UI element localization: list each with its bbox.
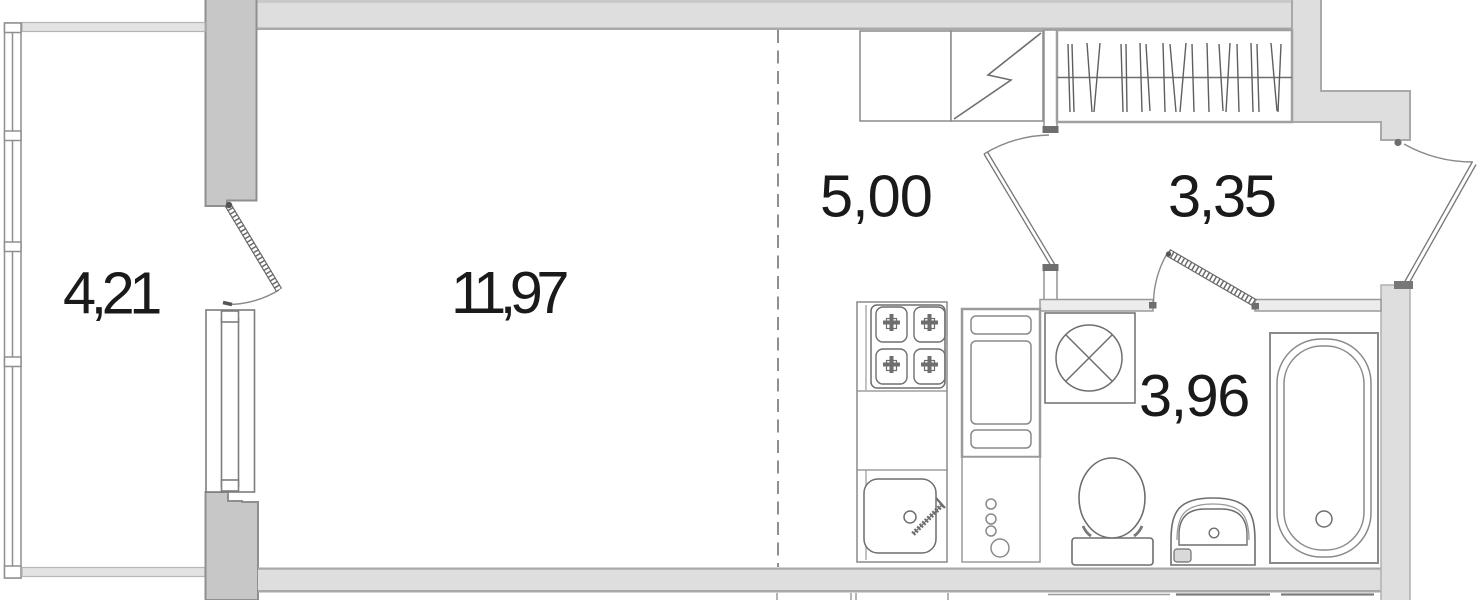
svg-text:5,00: 5,00 xyxy=(820,163,932,230)
svg-text:3,96: 3,96 xyxy=(1139,362,1249,429)
svg-text:11,97: 11,97 xyxy=(451,259,567,326)
svg-text:3,35: 3,35 xyxy=(1168,163,1275,230)
svg-text:4,21: 4,21 xyxy=(63,260,160,327)
